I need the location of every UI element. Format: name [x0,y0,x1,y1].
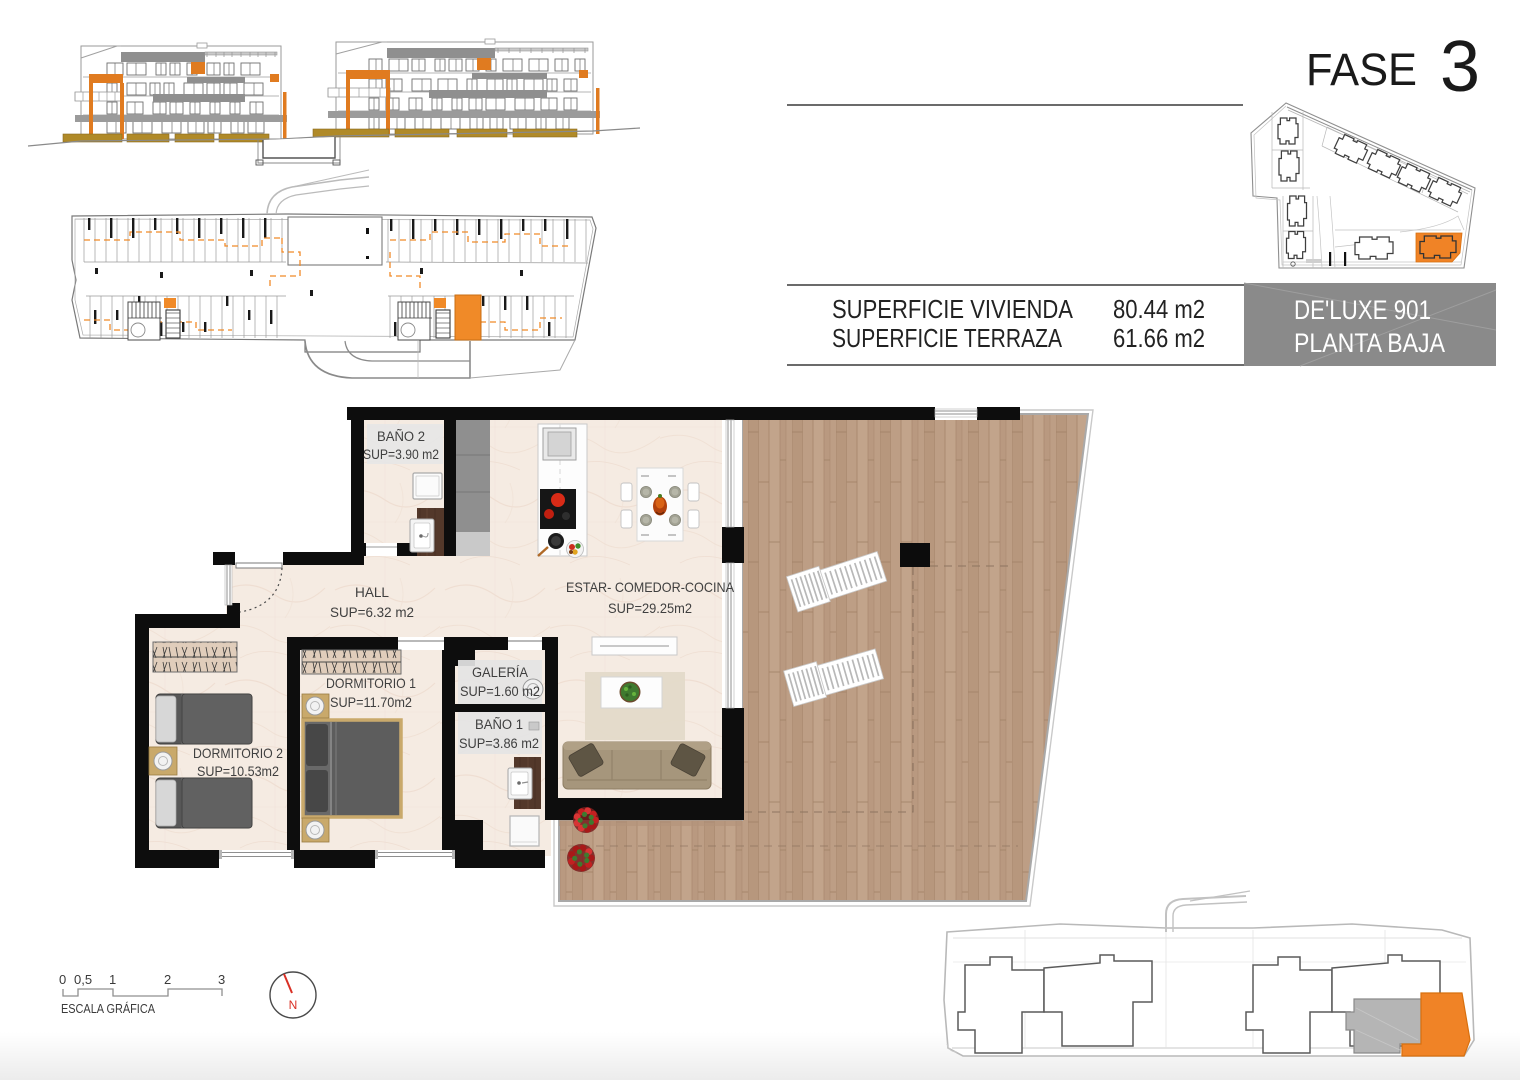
svg-text:SUP=1.60 m2: SUP=1.60 m2 [460,684,540,699]
svg-text:FASE: FASE [1306,44,1417,95]
svg-text:2: 2 [164,972,171,987]
svg-text:SUP=10.53m2: SUP=10.53m2 [197,763,279,779]
svg-text:SUP=11.70m2: SUP=11.70m2 [330,694,412,710]
svg-text:BAÑO 2: BAÑO 2 [377,429,425,444]
svg-text:HALL: HALL [355,584,389,600]
svg-text:BAÑO 1: BAÑO 1 [475,717,523,732]
svg-text:SUPERFICIE TERRAZA: SUPERFICIE TERRAZA [832,323,1063,353]
svg-text:SUP=29.25m2: SUP=29.25m2 [608,600,692,616]
svg-text:GALERÍA: GALERÍA [472,665,528,680]
svg-text:DORMITORIO 1: DORMITORIO 1 [326,675,416,691]
svg-text:SUPERFICIE VIVIENDA: SUPERFICIE VIVIENDA [832,294,1074,324]
svg-text:SUP=3.86 m2: SUP=3.86 m2 [459,736,539,751]
svg-text:61.66 m2: 61.66 m2 [1113,323,1205,353]
svg-text:SUP=3.90 m2: SUP=3.90 m2 [363,447,439,462]
svg-text:ESTAR- COMEDOR-COCINA: ESTAR- COMEDOR-COCINA [566,579,735,595]
svg-text:N: N [289,998,298,1012]
svg-text:SUP=6.32 m2: SUP=6.32 m2 [330,604,414,620]
svg-text:3: 3 [1440,27,1480,107]
svg-text:1: 1 [109,972,116,987]
svg-text:PLANTA BAJA: PLANTA BAJA [1294,328,1445,358]
svg-text:DE'LUXE 901: DE'LUXE 901 [1294,295,1431,325]
svg-text:0: 0 [59,972,66,987]
svg-text:DORMITORIO 2: DORMITORIO 2 [193,745,283,761]
svg-text:0,5: 0,5 [74,972,92,987]
svg-text:80.44 m2: 80.44 m2 [1113,294,1205,324]
svg-text:ESCALA GRÁFICA: ESCALA GRÁFICA [61,1001,155,1016]
svg-text:3: 3 [218,972,225,987]
